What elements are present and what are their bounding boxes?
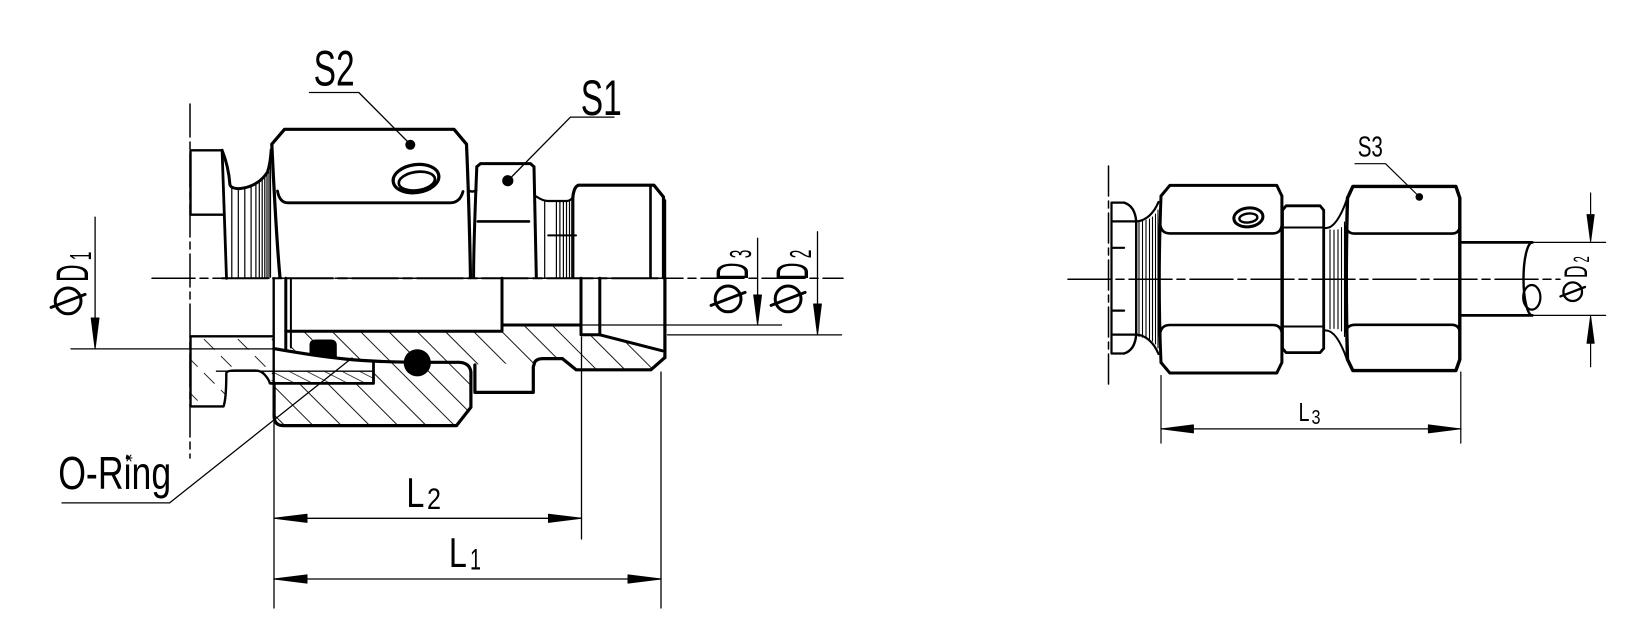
svg-text:2: 2	[783, 250, 818, 259]
svg-text:L: L	[1299, 397, 1310, 427]
svg-text:D: D	[47, 265, 98, 283]
svg-text:3: 3	[1312, 407, 1321, 429]
svg-text:2: 2	[1569, 256, 1594, 262]
svg-text:D: D	[707, 263, 758, 281]
svg-text:O-Ring: O-Ring	[58, 447, 171, 499]
svg-text:3: 3	[723, 250, 758, 259]
svg-text:2: 2	[427, 483, 441, 516]
svg-text:S2: S2	[314, 41, 355, 97]
svg-text:S3: S3	[1358, 131, 1383, 163]
svg-text:L: L	[449, 529, 467, 576]
svg-text:D: D	[1558, 266, 1594, 279]
svg-text:L: L	[406, 469, 424, 516]
svg-text:1: 1	[470, 544, 481, 577]
svg-text:1: 1	[63, 252, 98, 261]
svg-text:D: D	[767, 263, 818, 281]
